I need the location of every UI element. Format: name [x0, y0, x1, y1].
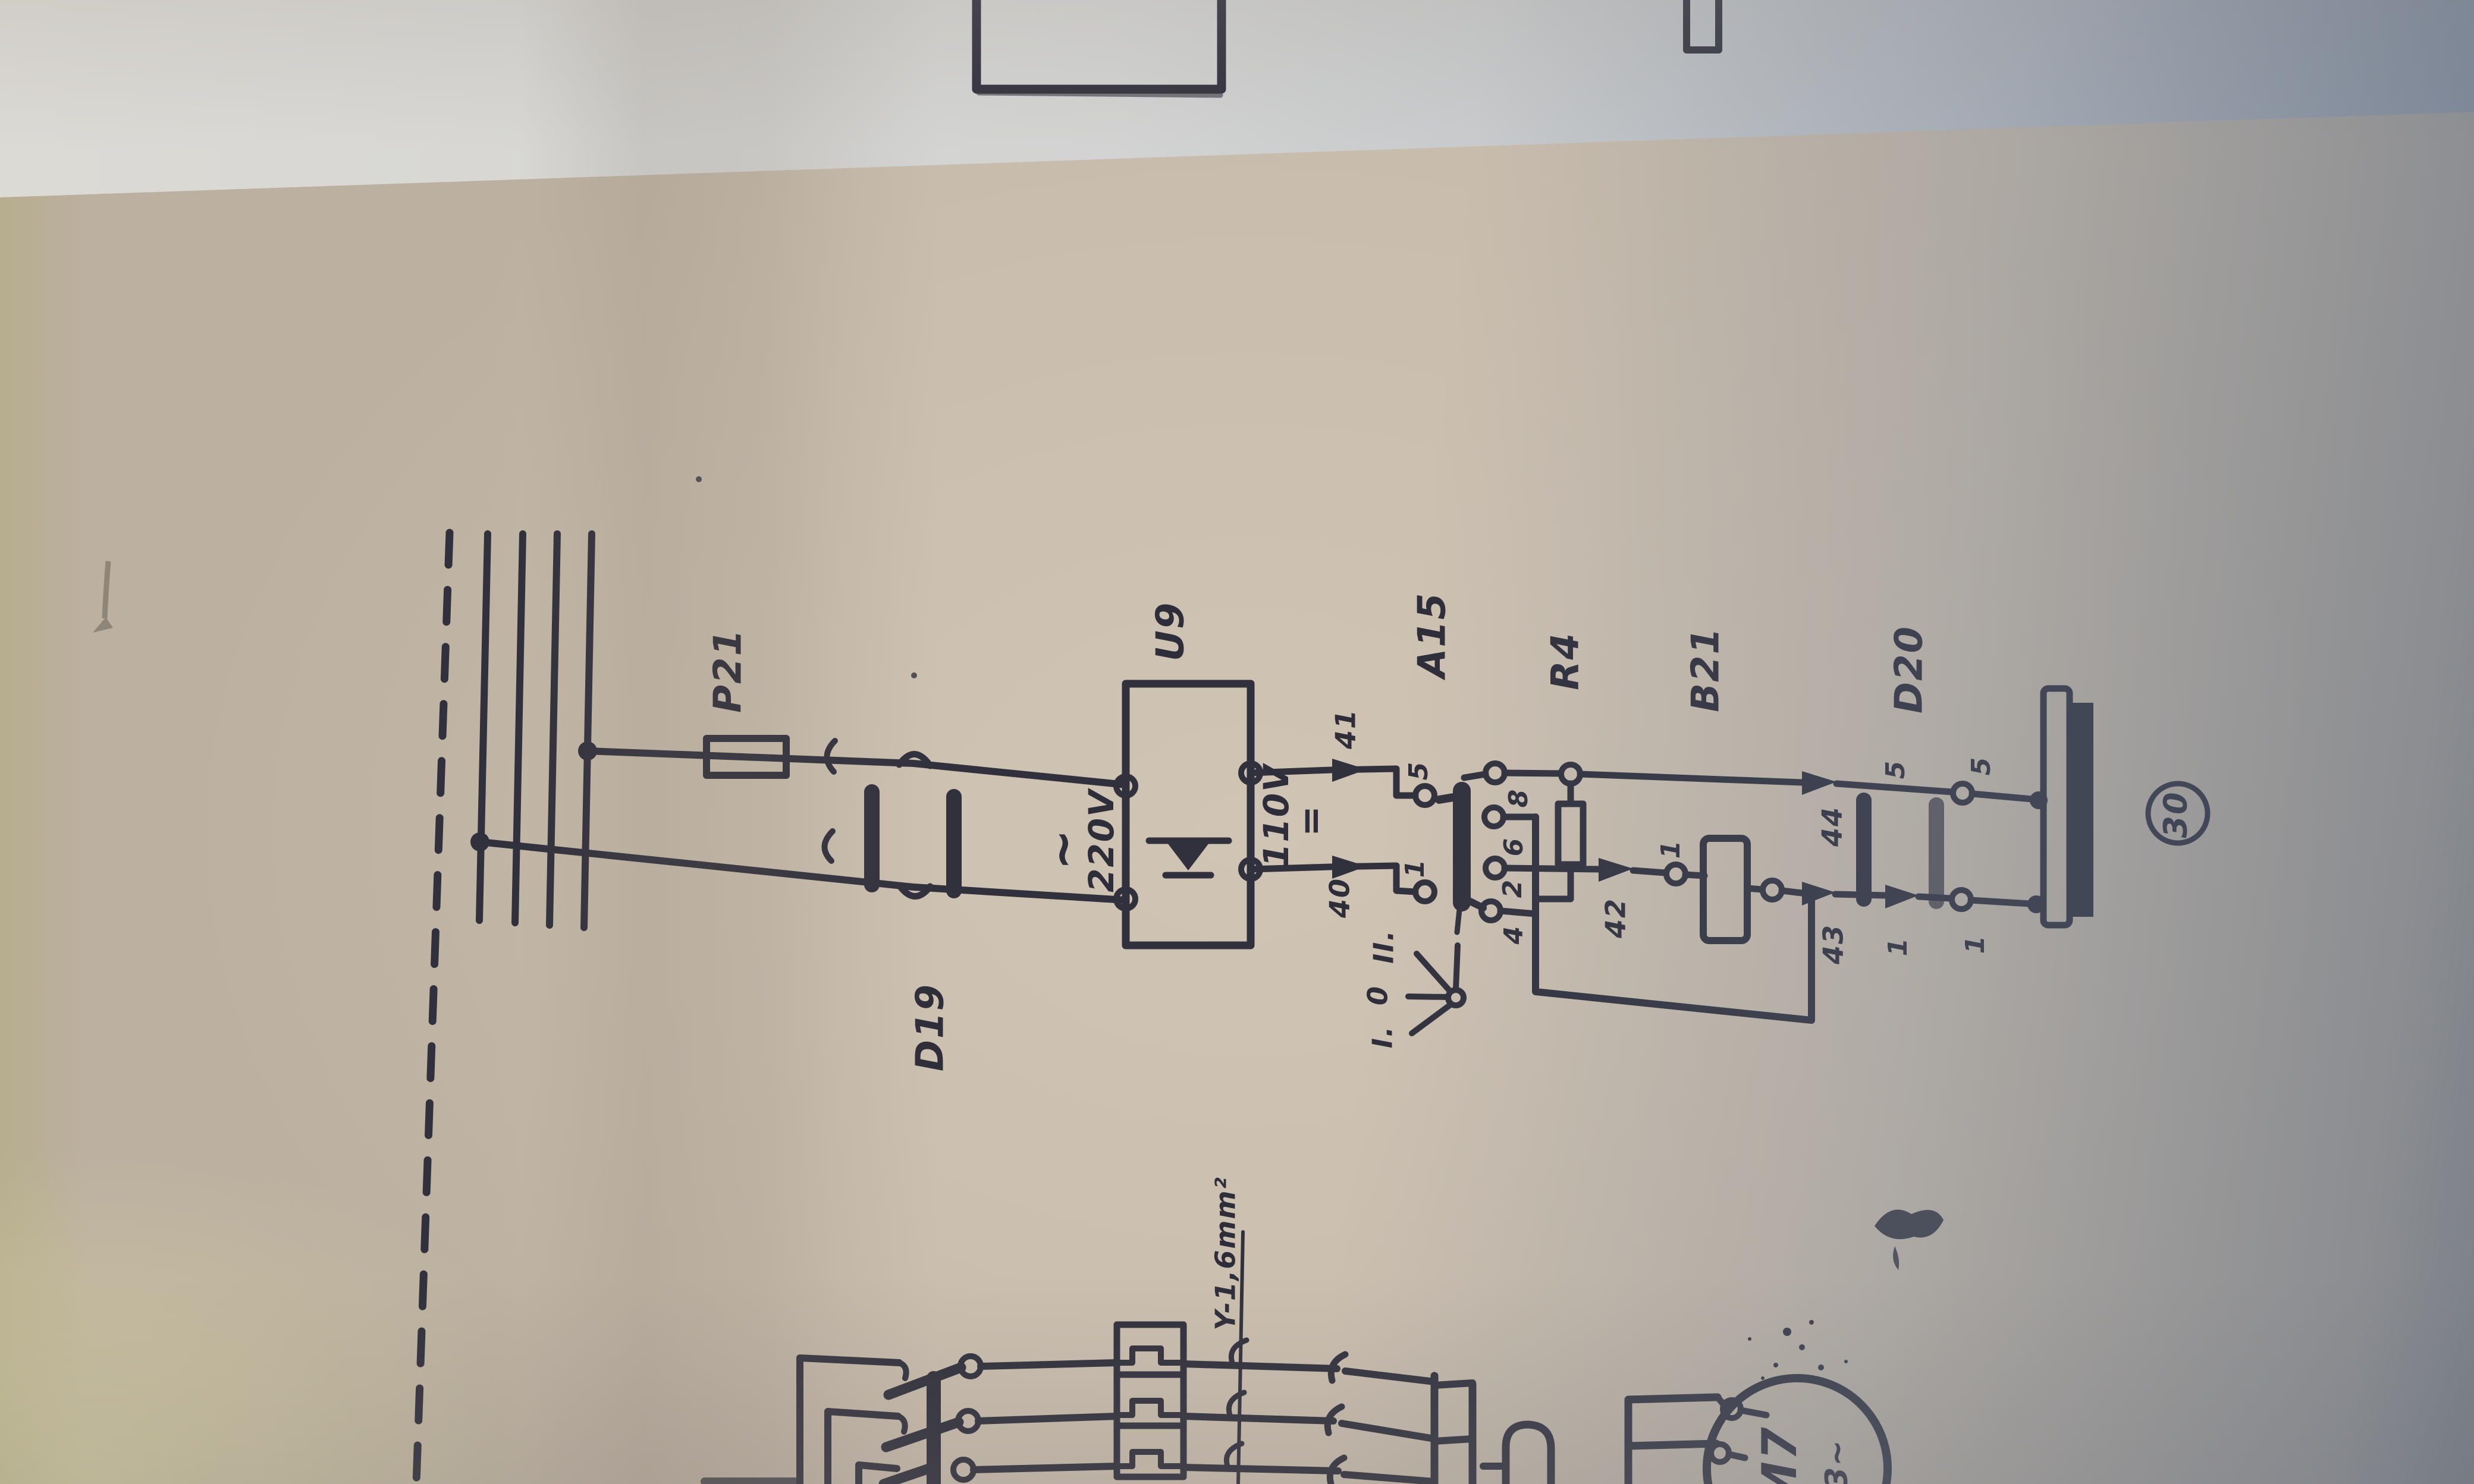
terminal-label: 5	[1404, 761, 1434, 781]
terminal-label: 8	[1503, 788, 1534, 808]
schematic-drawing: P21 D19 U9 A15 R4 B21 D20 M7 3~ ~ 220V 1…	[0, 0, 2474, 1484]
label-p21: P21	[707, 628, 751, 713]
terminal-label: 2	[1497, 879, 1528, 898]
contact-arrow-40	[1332, 856, 1367, 879]
label-pos-I: I.	[1367, 1026, 1399, 1049]
terminal-label: 4	[1499, 925, 1529, 945]
contact-arrow-41	[1332, 759, 1367, 782]
terminal-label: 40	[1324, 878, 1356, 919]
contact-blade	[886, 1422, 959, 1447]
terminal-label: 1	[1656, 840, 1686, 859]
contact-arrow-42	[1599, 858, 1633, 882]
label-dc: =	[1289, 804, 1332, 837]
component-labels: P21 D19 U9 A15 R4 B21 D20 M7 3~ ~ 220V 1…	[707, 592, 2194, 1484]
terminal-number-labels: 41 5 40 1 8 6 2 4 42 1 44 43 5 5 1 1	[1324, 709, 1997, 965]
upper-page-partial-boxes	[977, 0, 1719, 95]
label-r4: R4	[1544, 632, 1588, 690]
rectifier-u9	[1116, 684, 1260, 945]
terminal-label: 6	[1499, 837, 1529, 857]
contact-arrow-1	[1885, 885, 1919, 908]
control-feeders	[480, 738, 1126, 900]
supply-bus	[416, 533, 597, 1484]
label-pos-0: 0	[1362, 985, 1394, 1005]
diode-icon	[1149, 841, 1229, 875]
link-hook	[824, 831, 833, 861]
power-section	[696, 476, 1944, 1484]
label-d19: D19	[909, 983, 953, 1071]
terminal-label: 44	[1816, 806, 1848, 847]
cable-arch	[1506, 1425, 1551, 1484]
terminal-label: 42	[1600, 898, 1632, 939]
terminal-label: 1	[1883, 937, 1913, 957]
contact-blade	[888, 1367, 961, 1395]
link-hook	[827, 741, 835, 772]
contact-arrow-43	[1802, 882, 1835, 906]
rectifier-box	[1126, 684, 1251, 945]
photo-of-schematic-page: P21 D19 U9 A15 R4 B21 D20 M7 3~ ~ 220V 1…	[0, 0, 2474, 1484]
relay-coil-b21	[1703, 838, 1747, 941]
terminal-label: 1	[1960, 935, 1990, 954]
terminal-bar-outline	[2043, 688, 2070, 925]
terminal-circle	[1415, 786, 1434, 805]
terminal-circle	[1415, 882, 1434, 901]
terminal-label: 5	[1966, 756, 1996, 776]
pencil-mark	[93, 561, 113, 633]
label-b21: B21	[1684, 627, 1728, 712]
label-sheet-ref: 30	[2157, 791, 2194, 838]
transformer-d19	[872, 754, 954, 896]
label-3phase: 3~	[1819, 1439, 1855, 1484]
label-u9: U9	[1149, 602, 1193, 662]
label-d20: D20	[1888, 625, 1932, 713]
label-220v: 220V	[1081, 788, 1122, 892]
terminal-label: 1	[1400, 859, 1430, 878]
ink-smudge	[1875, 1209, 1944, 1239]
ink-spatter	[1748, 1209, 1944, 1389]
contact-arrow-44	[1802, 771, 1836, 795]
dashed-boundary-line	[416, 533, 450, 1484]
terminal-label: 43	[1817, 924, 1850, 965]
terminal-bar-solid	[2070, 703, 2093, 917]
terminal-label: 5	[1880, 760, 1911, 779]
label-pos-II: II.	[1368, 929, 1400, 964]
label-a15: A15	[1411, 592, 1455, 681]
partial-box-large	[977, 0, 1222, 89]
label-wire-spec: Y-1,6mm²	[1210, 1176, 1242, 1330]
label-m7: M7	[1752, 1426, 1807, 1484]
resistor-body	[1558, 804, 1583, 864]
partial-box-small	[1687, 0, 1719, 50]
terminal-label: 41	[1330, 709, 1362, 750]
